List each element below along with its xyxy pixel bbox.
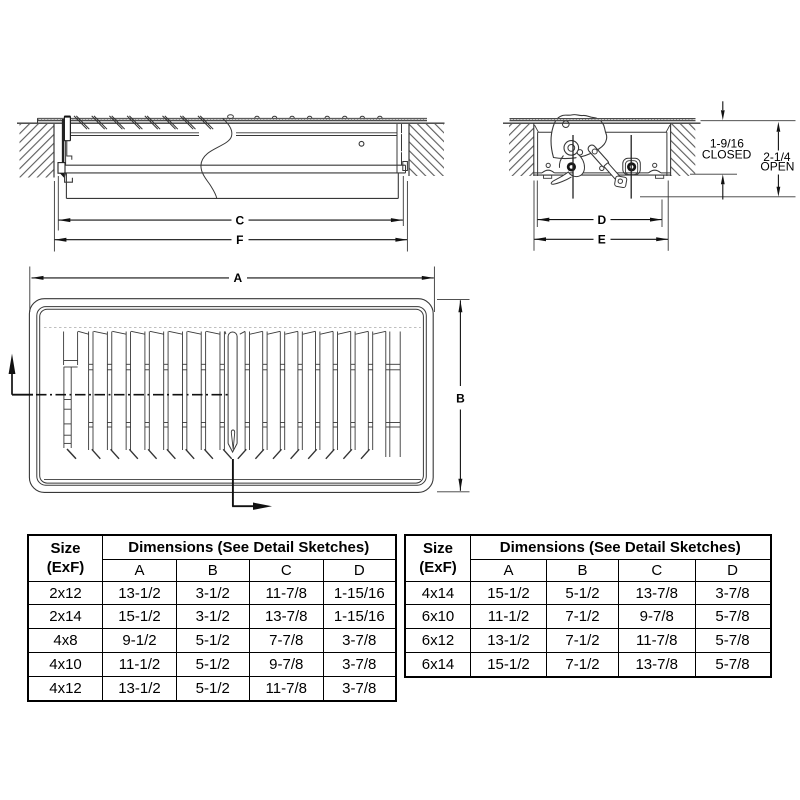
svg-text:A: A bbox=[233, 271, 242, 285]
svg-text:C: C bbox=[235, 213, 244, 227]
svg-text:F: F bbox=[236, 233, 243, 247]
svg-text:OPEN: OPEN bbox=[760, 160, 794, 174]
svg-text:CLOSED: CLOSED bbox=[702, 147, 752, 161]
svg-text:B: B bbox=[456, 391, 465, 405]
svg-text:D: D bbox=[597, 213, 606, 227]
svg-text:E: E bbox=[598, 233, 606, 247]
